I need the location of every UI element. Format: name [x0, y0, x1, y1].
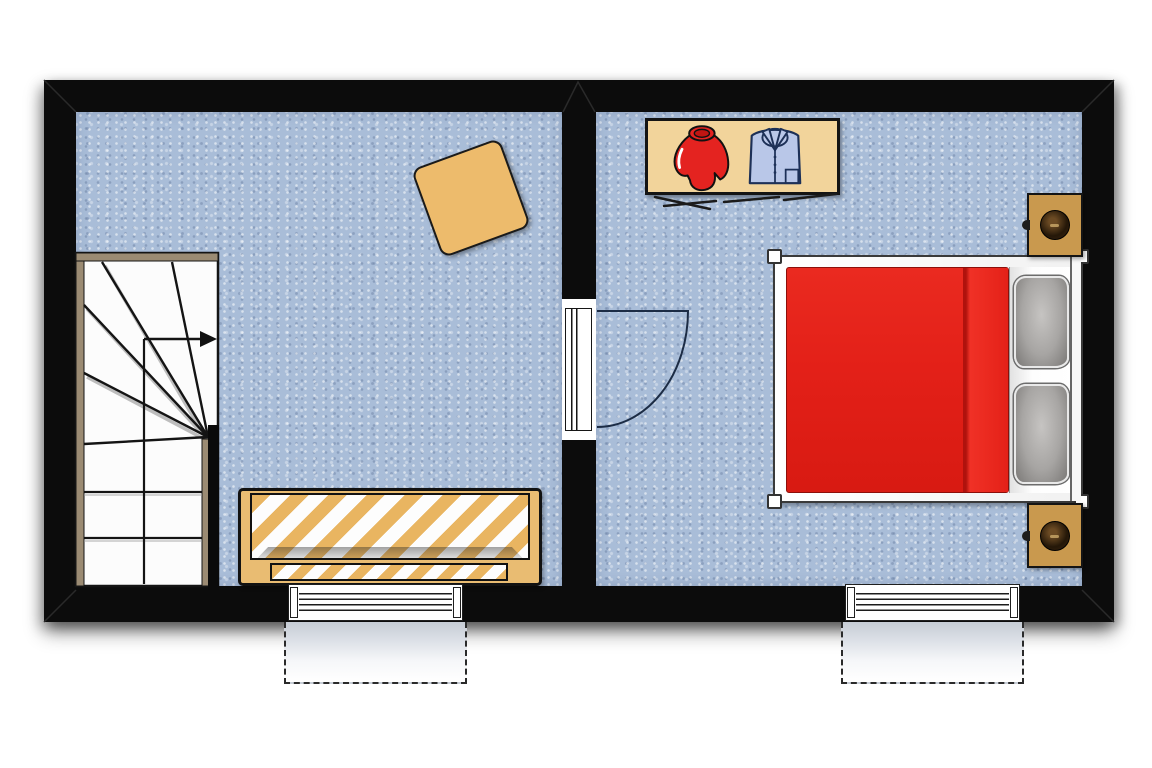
pillow: [1014, 276, 1069, 368]
nightstand-bottom[interactable]: [1027, 503, 1083, 568]
window-glazing-lines: [299, 593, 452, 611]
window-post: [290, 587, 298, 618]
headboard: [1070, 257, 1081, 501]
nightstand-top[interactable]: [1027, 193, 1083, 257]
window-left-room[interactable]: [288, 584, 463, 621]
stair-wall-stub: [208, 425, 219, 590]
pillow: [1014, 384, 1069, 484]
red-sweater-icon: [654, 123, 749, 193]
bed-corner-knob: [767, 494, 782, 509]
daybed-mattress: [250, 493, 530, 560]
window-bedroom[interactable]: [845, 584, 1020, 621]
window-post: [1010, 587, 1018, 618]
daybed-bolster: [270, 563, 508, 581]
staircase-drawing: [76, 253, 218, 586]
duvet-fold: [963, 268, 1008, 492]
red-duvet: [786, 267, 1009, 493]
dormer-right: [841, 622, 1024, 684]
blue-shirt-icon: [742, 125, 808, 189]
double-bed[interactable]: [773, 255, 1083, 503]
staircase[interactable]: [76, 253, 218, 586]
window-glazing-lines: [856, 593, 1009, 611]
nightstand-knob: [1022, 531, 1030, 541]
lamp-icon: [1040, 521, 1070, 551]
open-wardrobe[interactable]: [645, 118, 840, 195]
lamp-icon: [1040, 210, 1070, 240]
dormer-left: [284, 622, 467, 684]
striped-daybed[interactable]: [238, 488, 542, 586]
bed-corner-knob: [767, 249, 782, 264]
door-panel[interactable]: [565, 308, 592, 431]
nightstand-knob: [1022, 220, 1030, 230]
floor-plan: [44, 80, 1114, 622]
window-post: [453, 587, 461, 618]
pillow-zone: [1009, 267, 1073, 493]
door-jamb-bottom: [562, 435, 596, 440]
window-post: [847, 587, 855, 618]
